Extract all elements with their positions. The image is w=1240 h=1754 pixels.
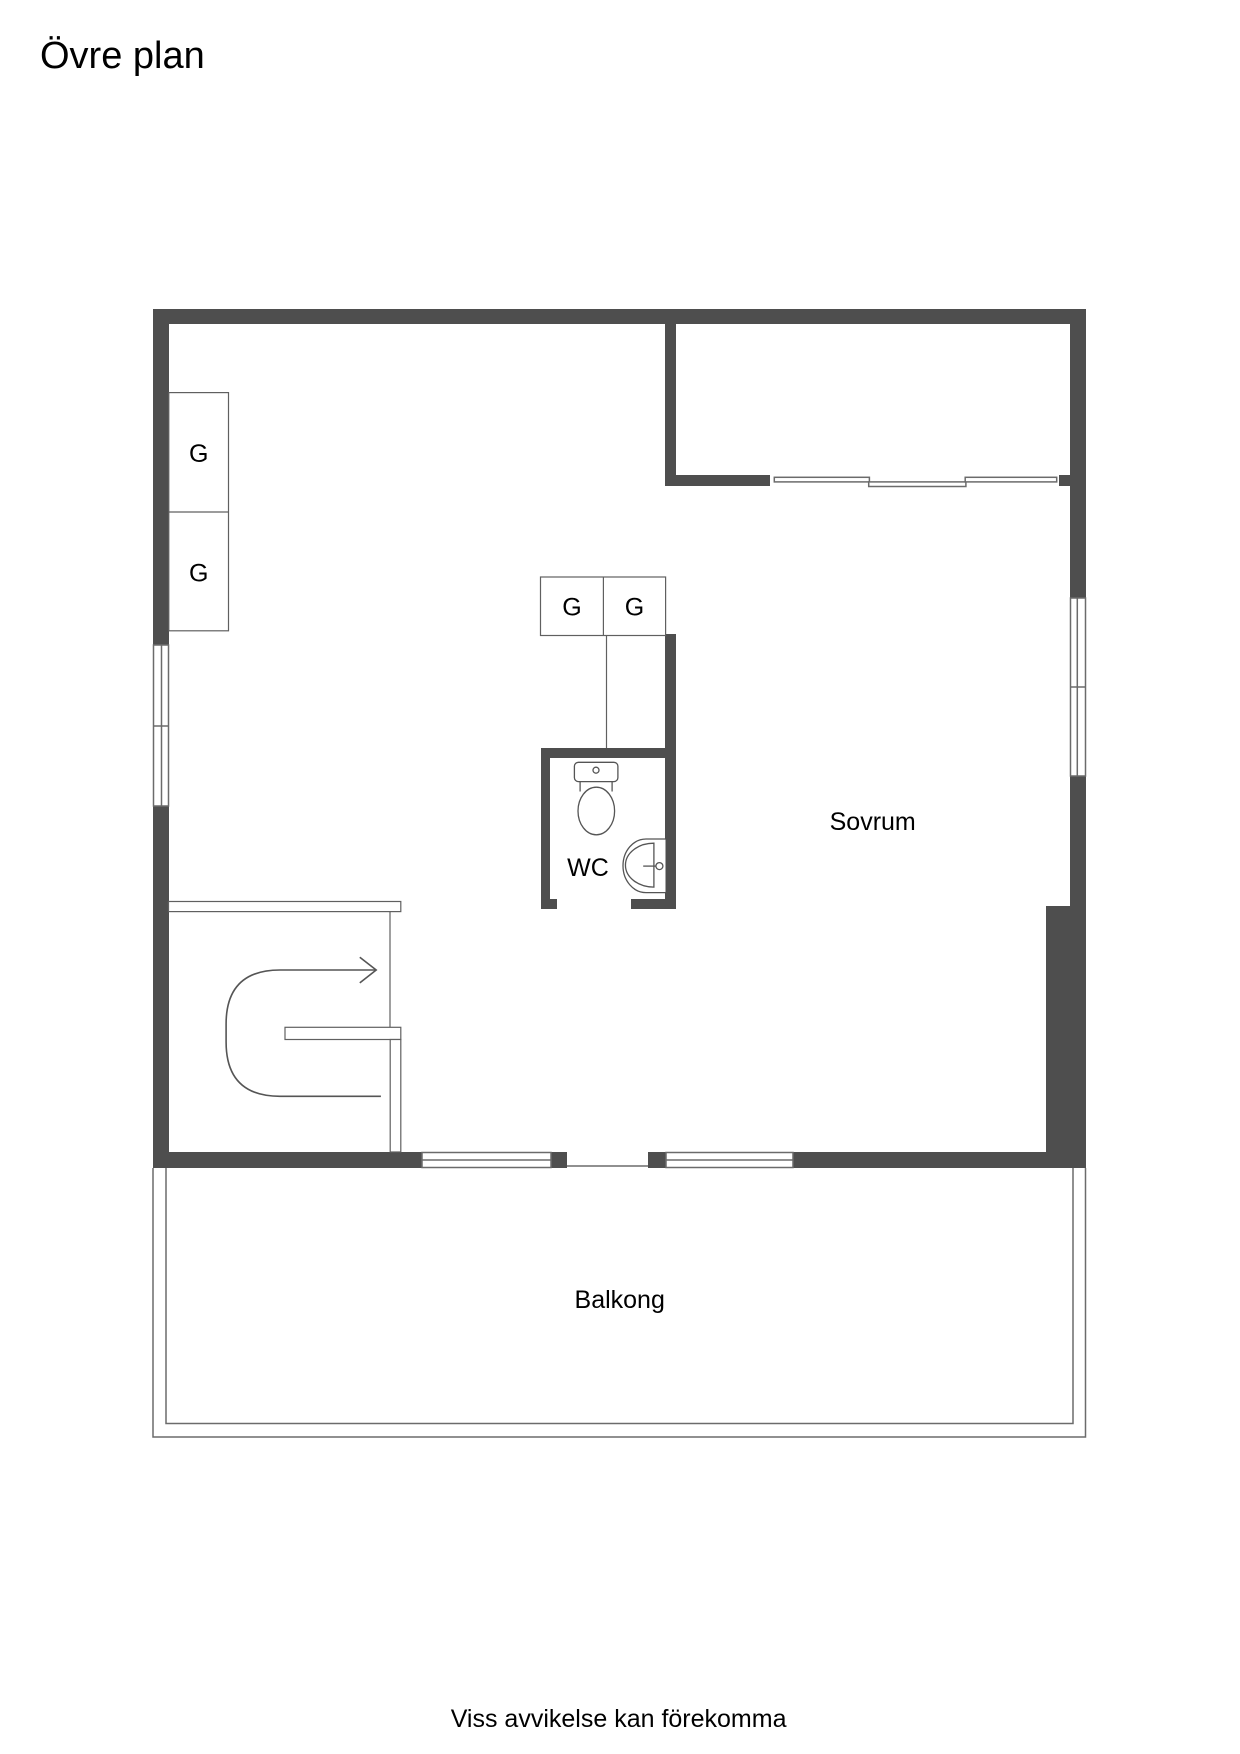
svg-text:WC: WC bbox=[567, 854, 609, 882]
svg-text:G: G bbox=[625, 594, 644, 622]
svg-text:Sovrum: Sovrum bbox=[830, 808, 916, 836]
svg-text:Balkong: Balkong bbox=[575, 1286, 665, 1314]
svg-text:Övre plan: Övre plan bbox=[40, 35, 205, 77]
svg-text:Viss avvikelse kan förekomma: Viss avvikelse kan förekomma bbox=[451, 1705, 787, 1733]
svg-text:G: G bbox=[562, 594, 581, 622]
svg-text:G: G bbox=[189, 440, 208, 468]
svg-text:G: G bbox=[189, 559, 208, 587]
